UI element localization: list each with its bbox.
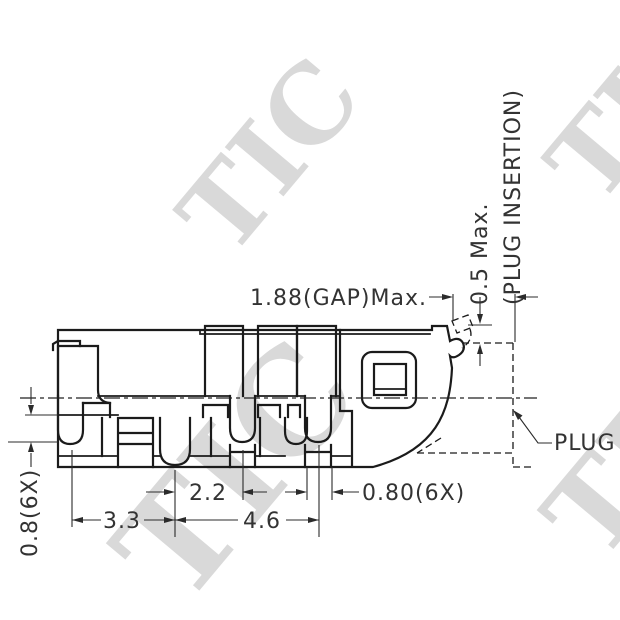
plug-outline-dashed: [417, 343, 532, 467]
arrowhead-left: [332, 489, 343, 495]
dim-label-2-2: 2.2: [189, 481, 227, 506]
hidden-chamfer: [417, 438, 441, 453]
terminal-1-contact-u: [58, 396, 83, 444]
watermark-text: TIC: [154, 35, 385, 276]
arrowhead-down: [477, 314, 483, 324]
dim-label-half-max: 0.5 Max.: [468, 203, 493, 305]
arrowhead-up: [28, 442, 34, 452]
plug-leader-line: [519, 417, 552, 443]
arrowhead-down: [28, 405, 34, 415]
dim-label-3-3: 3.3: [103, 509, 141, 534]
dim-label-plug-insertion: (PLUG INSERTION): [501, 89, 526, 305]
arrowhead-right: [442, 294, 453, 300]
dim-label-gap-max: 1.88(GAP)Max.: [250, 286, 427, 311]
watermark-text: TIC: [83, 311, 389, 620]
watermark-text: TIC: [522, 0, 620, 224]
dim-label-0-8-6x: 0.8(6X): [18, 469, 43, 557]
plug-label: PLUG: [554, 431, 616, 456]
latch-window-outer: [362, 352, 416, 408]
arrowhead-left: [72, 517, 83, 523]
left-dim-lines: [8, 387, 58, 467]
dim-label-4-6: 4.6: [243, 509, 281, 534]
arrowhead-right: [308, 517, 319, 523]
arrowhead-up: [477, 344, 483, 354]
latch-window-inner: [374, 364, 406, 395]
dim-label-0-80-6x: 0.80(6X): [362, 481, 465, 506]
technical-drawing: TIC TIC TIC TIC: [0, 0, 620, 620]
arrowhead-leader: [513, 410, 523, 420]
drawing-canvas: TIC TIC TIC TIC: [0, 0, 620, 620]
